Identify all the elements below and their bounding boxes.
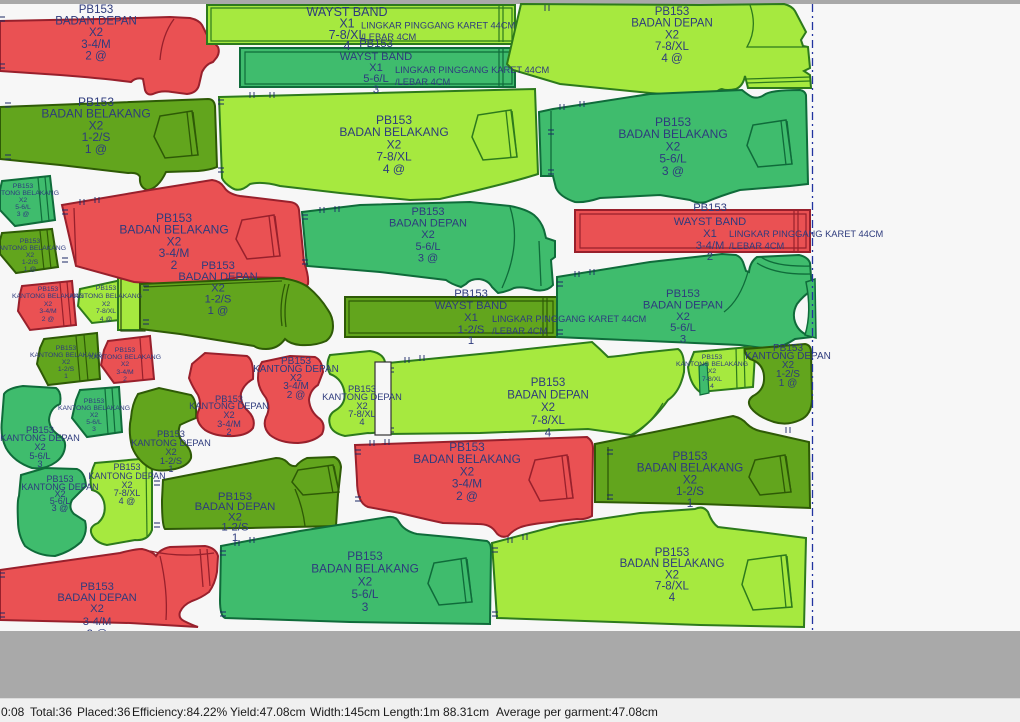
svg-text:LINGKAR PINGGANG KARET 44CM: LINGKAR PINGGANG KARET 44CM [361, 21, 515, 31]
svg-text:0:08: 0:08 [1, 705, 25, 719]
svg-text:PB153: PB153 [531, 377, 566, 389]
svg-text:5-6/L: 5-6/L [415, 241, 440, 253]
svg-text:5-6/L: 5-6/L [670, 322, 696, 334]
svg-text:X2: X2 [102, 301, 111, 308]
svg-text:BADAN DEPAN: BADAN DEPAN [643, 299, 723, 311]
svg-text:3-4/M: 3-4/M [81, 39, 110, 51]
svg-text:1: 1 [232, 532, 238, 544]
svg-text:2: 2 [226, 427, 231, 437]
svg-text:PB153: PB153 [359, 38, 393, 50]
svg-text:7-8/XL: 7-8/XL [531, 415, 565, 427]
svg-text:1: 1 [168, 464, 173, 474]
svg-text:PB153: PB153 [411, 206, 444, 218]
svg-text:2: 2 [707, 251, 713, 263]
svg-text:X2: X2 [62, 359, 71, 366]
svg-text:7-8/XL: 7-8/XL [655, 581, 689, 593]
svg-text:7-8/XL: 7-8/XL [96, 308, 116, 315]
svg-text:X2: X2 [90, 412, 99, 419]
svg-text:4 @: 4 @ [661, 53, 682, 65]
svg-text:2 @: 2 @ [287, 390, 306, 401]
svg-text:LINGKAR PINGGANG KARET 44CM: LINGKAR PINGGANG KARET 44CM [395, 65, 549, 75]
svg-text:1-2/S: 1-2/S [205, 294, 232, 306]
svg-text:PB153: PB153 [201, 260, 235, 272]
svg-text:4: 4 [359, 417, 364, 427]
svg-text:3 @: 3 @ [17, 211, 30, 218]
svg-text:X2: X2 [121, 361, 130, 368]
svg-text:X2: X2 [19, 197, 28, 204]
svg-text:1: 1 [468, 335, 474, 347]
svg-text:PB153: PB153 [79, 4, 114, 16]
svg-text:1: 1 [687, 497, 694, 510]
svg-text:X2: X2 [89, 27, 103, 39]
svg-text:1-2/S: 1-2/S [58, 366, 75, 373]
svg-text:KANTONG BELAKANG: KANTONG BELAKANG [89, 354, 161, 361]
svg-text:X2: X2 [211, 282, 225, 294]
svg-text:PB153: PB153 [666, 288, 700, 300]
svg-text:PB153: PB153 [115, 347, 136, 354]
svg-text:PB153: PB153 [20, 238, 41, 245]
svg-text:1 @: 1 @ [779, 378, 798, 389]
svg-text:3 @: 3 @ [662, 164, 684, 178]
svg-text:PB153: PB153 [702, 354, 723, 361]
svg-text:5-6/L: 5-6/L [15, 204, 31, 211]
svg-text:1: 1 [64, 373, 68, 380]
svg-text:WAYST BAND: WAYST BAND [674, 216, 747, 228]
svg-text:4 @: 4 @ [100, 316, 113, 323]
svg-text:PB153: PB153 [655, 6, 690, 18]
svg-text:BADAN DEPAN: BADAN DEPAN [631, 18, 713, 30]
svg-text:BADAN DEPAN: BADAN DEPAN [55, 16, 137, 28]
svg-text:3 @: 3 @ [418, 252, 438, 264]
svg-text:3-4/M: 3-4/M [83, 616, 112, 628]
svg-text:Total:36: Total:36 [30, 705, 72, 719]
svg-text:KANTONG BELAKANG: KANTONG BELAKANG [58, 405, 130, 412]
svg-text:4 @: 4 @ [119, 496, 136, 506]
svg-text:PB153: PB153 [96, 285, 117, 292]
svg-text:3 @: 3 @ [52, 503, 69, 513]
svg-text:KANTONG BELAKANG: KANTONG BELAKANG [70, 293, 142, 300]
svg-text:X2: X2 [421, 229, 434, 241]
svg-text:BADAN BELAKANG: BADAN BELAKANG [620, 558, 725, 570]
svg-text:X2: X2 [90, 603, 104, 615]
svg-text:4 @: 4 @ [383, 162, 405, 176]
svg-text:2 @: 2 @ [42, 316, 55, 323]
svg-text:KANTONG BELAKANG: KANTONG BELAKANG [676, 361, 748, 368]
svg-text:2 @: 2 @ [85, 50, 106, 62]
svg-text:Width:145cm: Width:145cm [310, 705, 380, 719]
svg-text:X1: X1 [703, 228, 717, 240]
svg-text:PB153: PB153 [56, 345, 77, 352]
svg-text:/LEBAR 4CM: /LEBAR 4CM [492, 326, 547, 336]
svg-text:1 @: 1 @ [85, 142, 107, 156]
svg-text:X2: X2 [44, 301, 53, 308]
svg-text:7-8/XL: 7-8/XL [702, 376, 722, 383]
svg-text:4: 4 [669, 592, 676, 604]
svg-text:BADAN DEPAN: BADAN DEPAN [389, 218, 467, 230]
svg-text:2 @: 2 @ [456, 489, 478, 503]
svg-text:X2: X2 [708, 368, 717, 375]
svg-text:Efficiency:84.22%: Efficiency:84.22% [132, 705, 227, 719]
svg-text:BADAN DEPAN: BADAN DEPAN [507, 390, 589, 402]
svg-text:Length:1m 88.31cm: Length:1m 88.31cm [383, 705, 489, 719]
svg-text:PB153: PB153 [13, 183, 34, 190]
svg-text:PB153: PB153 [84, 398, 105, 405]
svg-text:4: 4 [710, 383, 714, 390]
svg-text:Yield:47.08cm: Yield:47.08cm [230, 705, 306, 719]
svg-text:1 @: 1 @ [24, 266, 37, 273]
svg-text:3: 3 [373, 84, 379, 96]
svg-text:/LEBAR 4CM: /LEBAR 4CM [395, 77, 450, 87]
svg-text:X1: X1 [464, 312, 478, 324]
svg-text:X2: X2 [665, 569, 679, 581]
svg-text:1 @: 1 @ [208, 305, 229, 317]
svg-text:KANTONG BELAKANG: KANTONG BELAKANG [0, 245, 66, 252]
svg-text:/LEBAR 4CM: /LEBAR 4CM [729, 241, 784, 251]
svg-text:7-8/XL: 7-8/XL [655, 41, 689, 53]
svg-text:3-4/M: 3-4/M [39, 308, 57, 315]
svg-text:Placed:36: Placed:36 [77, 705, 131, 719]
svg-text:Average per garment:47.08cm: Average per garment:47.08cm [496, 705, 658, 719]
svg-text:3-4/M: 3-4/M [116, 369, 134, 376]
svg-text:2: 2 [123, 376, 127, 383]
svg-text:WAYST BAND: WAYST BAND [435, 300, 508, 312]
svg-text:1-2/S: 1-2/S [22, 259, 39, 266]
svg-text:PB153: PB153 [655, 547, 690, 559]
svg-text:X2: X2 [541, 402, 555, 414]
svg-text:PB153: PB153 [454, 288, 488, 300]
svg-text:3: 3 [680, 334, 686, 346]
svg-text:5-6/L: 5-6/L [86, 419, 102, 426]
svg-text:2: 2 [171, 258, 178, 272]
svg-text:3: 3 [362, 600, 369, 614]
svg-text:X2: X2 [676, 311, 690, 323]
svg-text:BADAN DEPAN: BADAN DEPAN [178, 271, 257, 283]
svg-text:KANTONG BELAKANG: KANTONG BELAKANG [0, 190, 59, 197]
svg-text:LINGKAR PINGGANG KARET 44CM: LINGKAR PINGGANG KARET 44CM [729, 229, 883, 239]
svg-text:X2: X2 [665, 29, 679, 41]
svg-text:PB153: PB153 [38, 286, 59, 293]
svg-text:PB153: PB153 [693, 202, 727, 214]
svg-text:3: 3 [92, 426, 96, 433]
svg-text:X2: X2 [26, 252, 35, 259]
svg-text:3: 3 [37, 459, 42, 469]
svg-text:4: 4 [545, 427, 552, 439]
svg-text:LINGKAR PINGGANG KARET 44CM: LINGKAR PINGGANG KARET 44CM [492, 314, 646, 324]
